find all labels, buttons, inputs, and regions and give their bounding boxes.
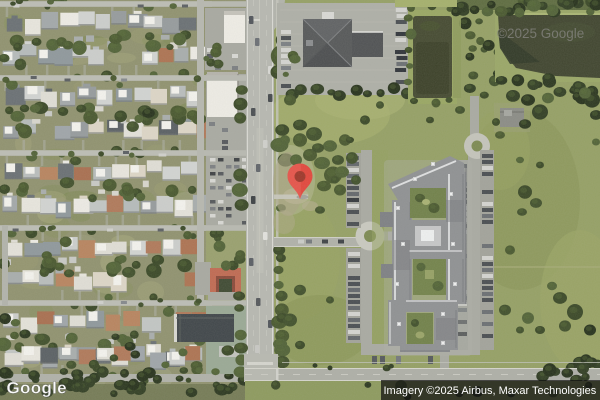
svg-text:Imagery ©2025 Airbus, Maxar Te: Imagery ©2025 Airbus, Maxar Technologies (384, 385, 597, 397)
svg-text:Google: Google (7, 379, 67, 398)
svg-text:©2025 Google: ©2025 Google (497, 26, 584, 41)
